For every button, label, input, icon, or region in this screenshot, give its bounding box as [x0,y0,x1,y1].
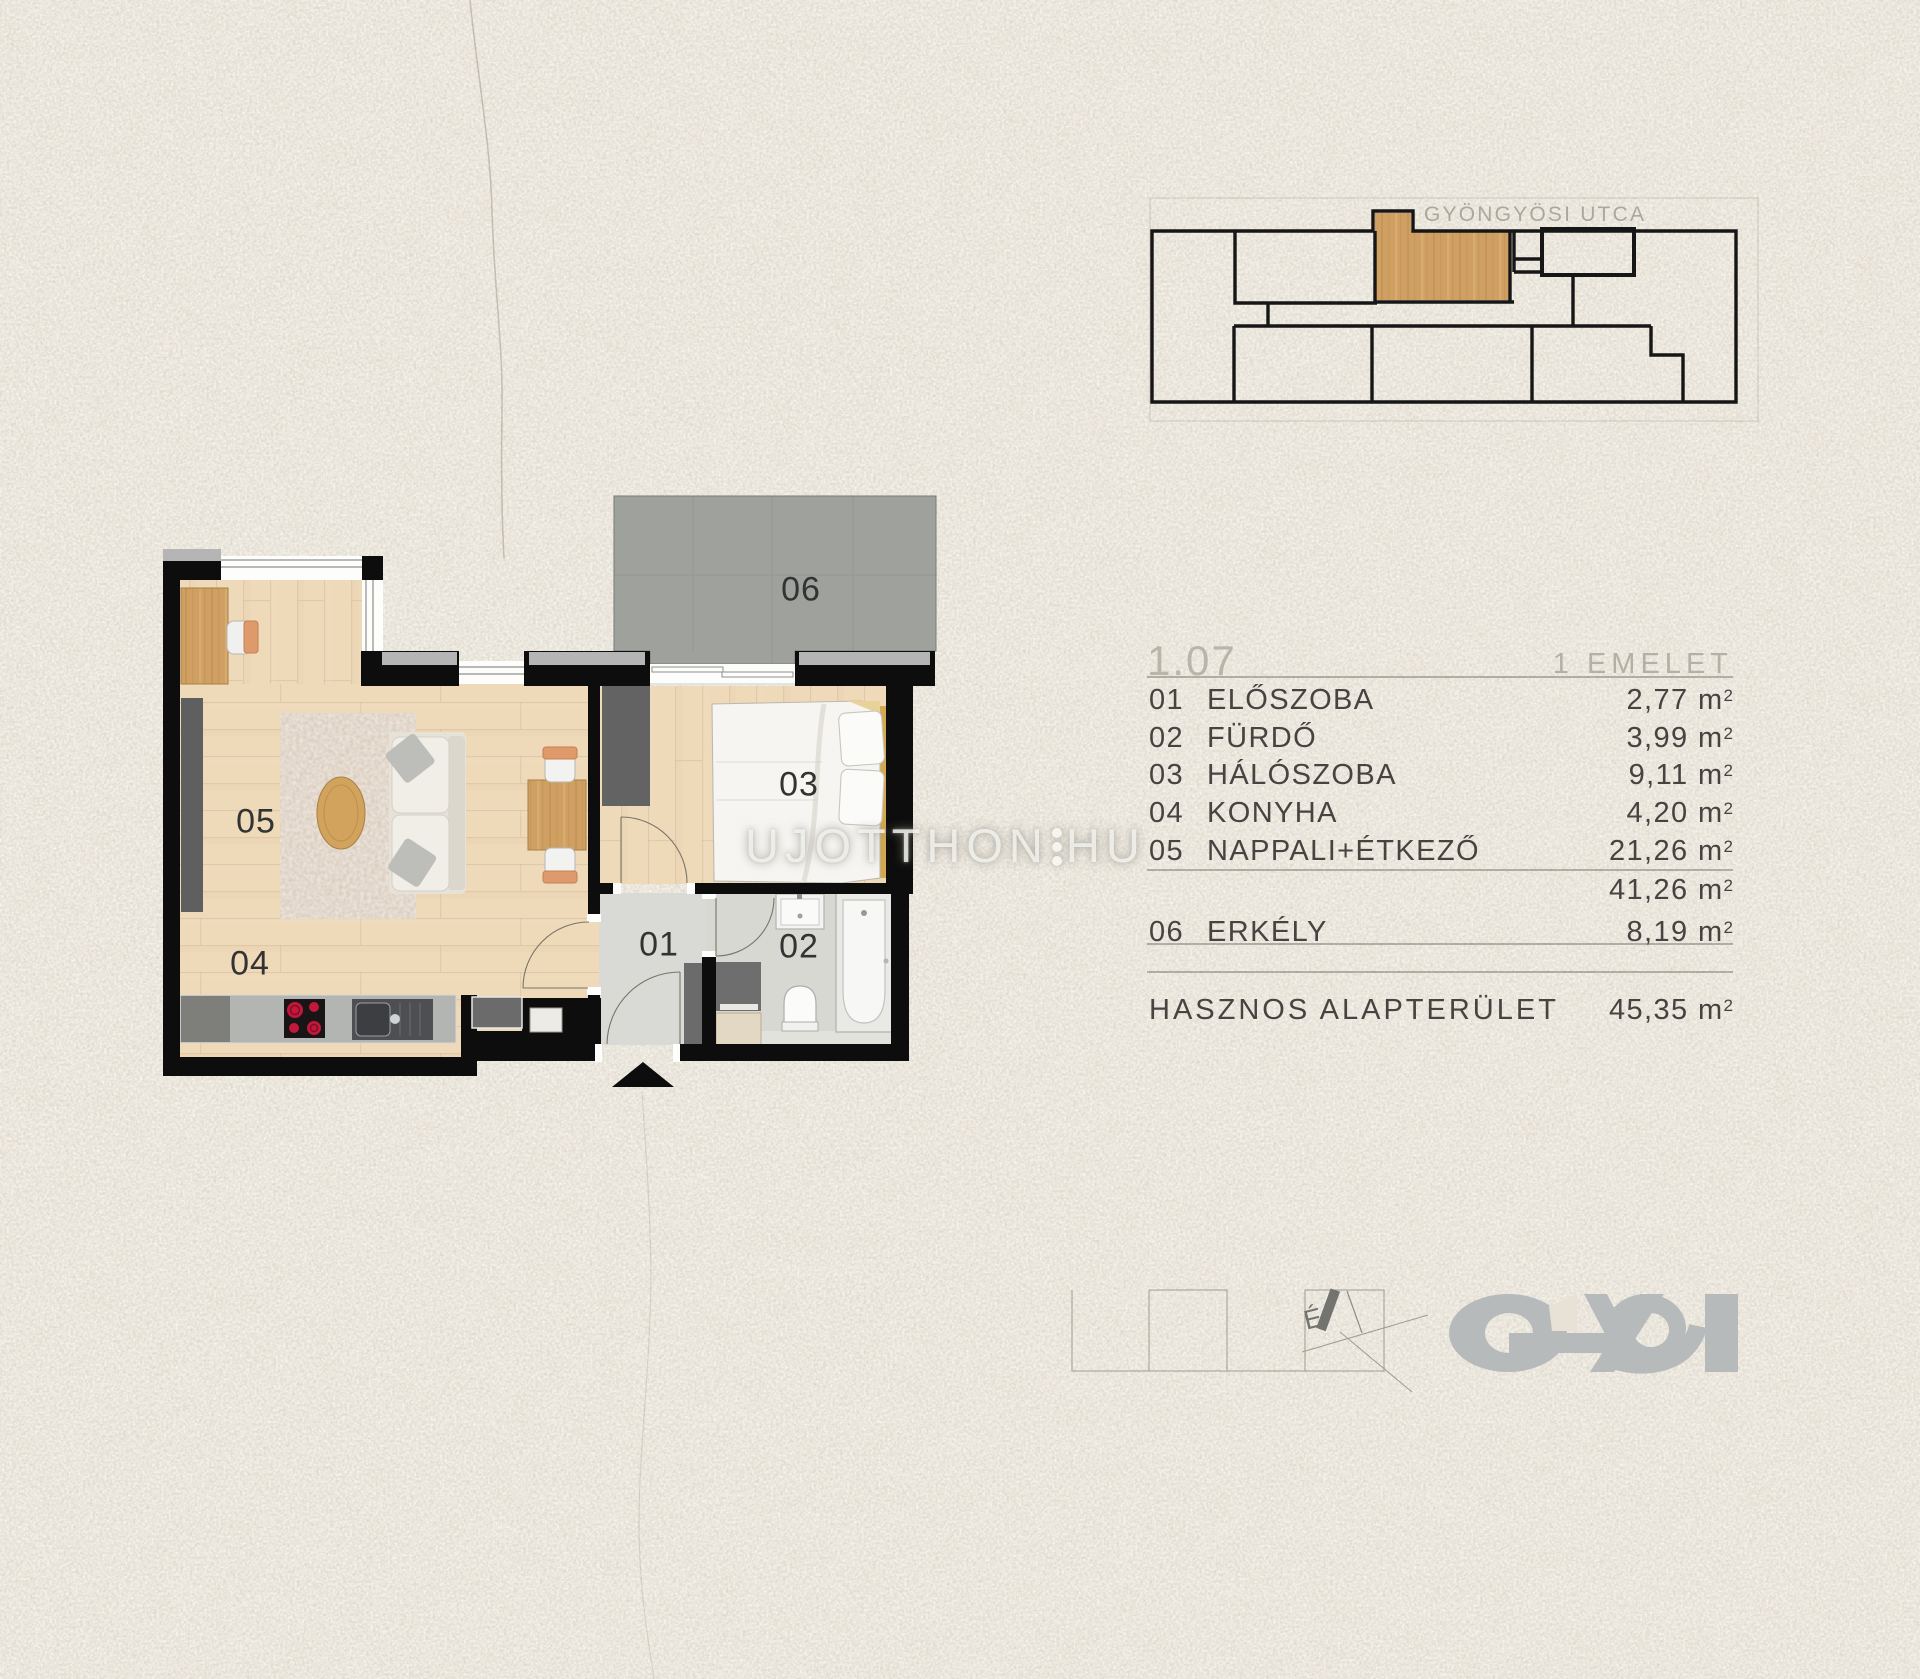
svg-text:GYÖNGYÖSI UTCA: GYÖNGYÖSI UTCA [1424,203,1646,226]
